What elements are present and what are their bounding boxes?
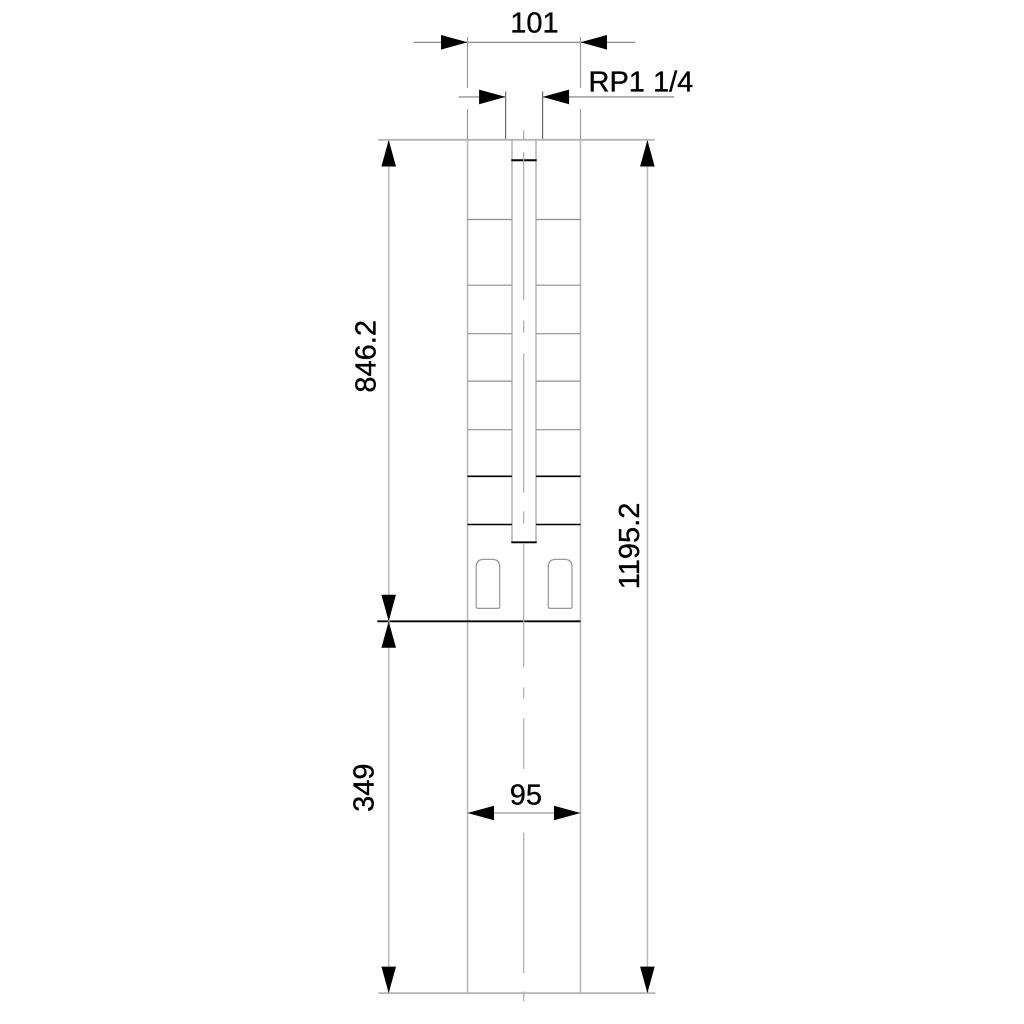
svg-text:95: 95: [510, 780, 542, 812]
svg-text:349: 349: [348, 764, 380, 812]
svg-text:846.2: 846.2: [351, 320, 383, 393]
svg-text:1195.2: 1195.2: [614, 503, 646, 590]
svg-text:RP1 1/4: RP1 1/4: [589, 67, 694, 99]
svg-text:101: 101: [510, 7, 558, 39]
